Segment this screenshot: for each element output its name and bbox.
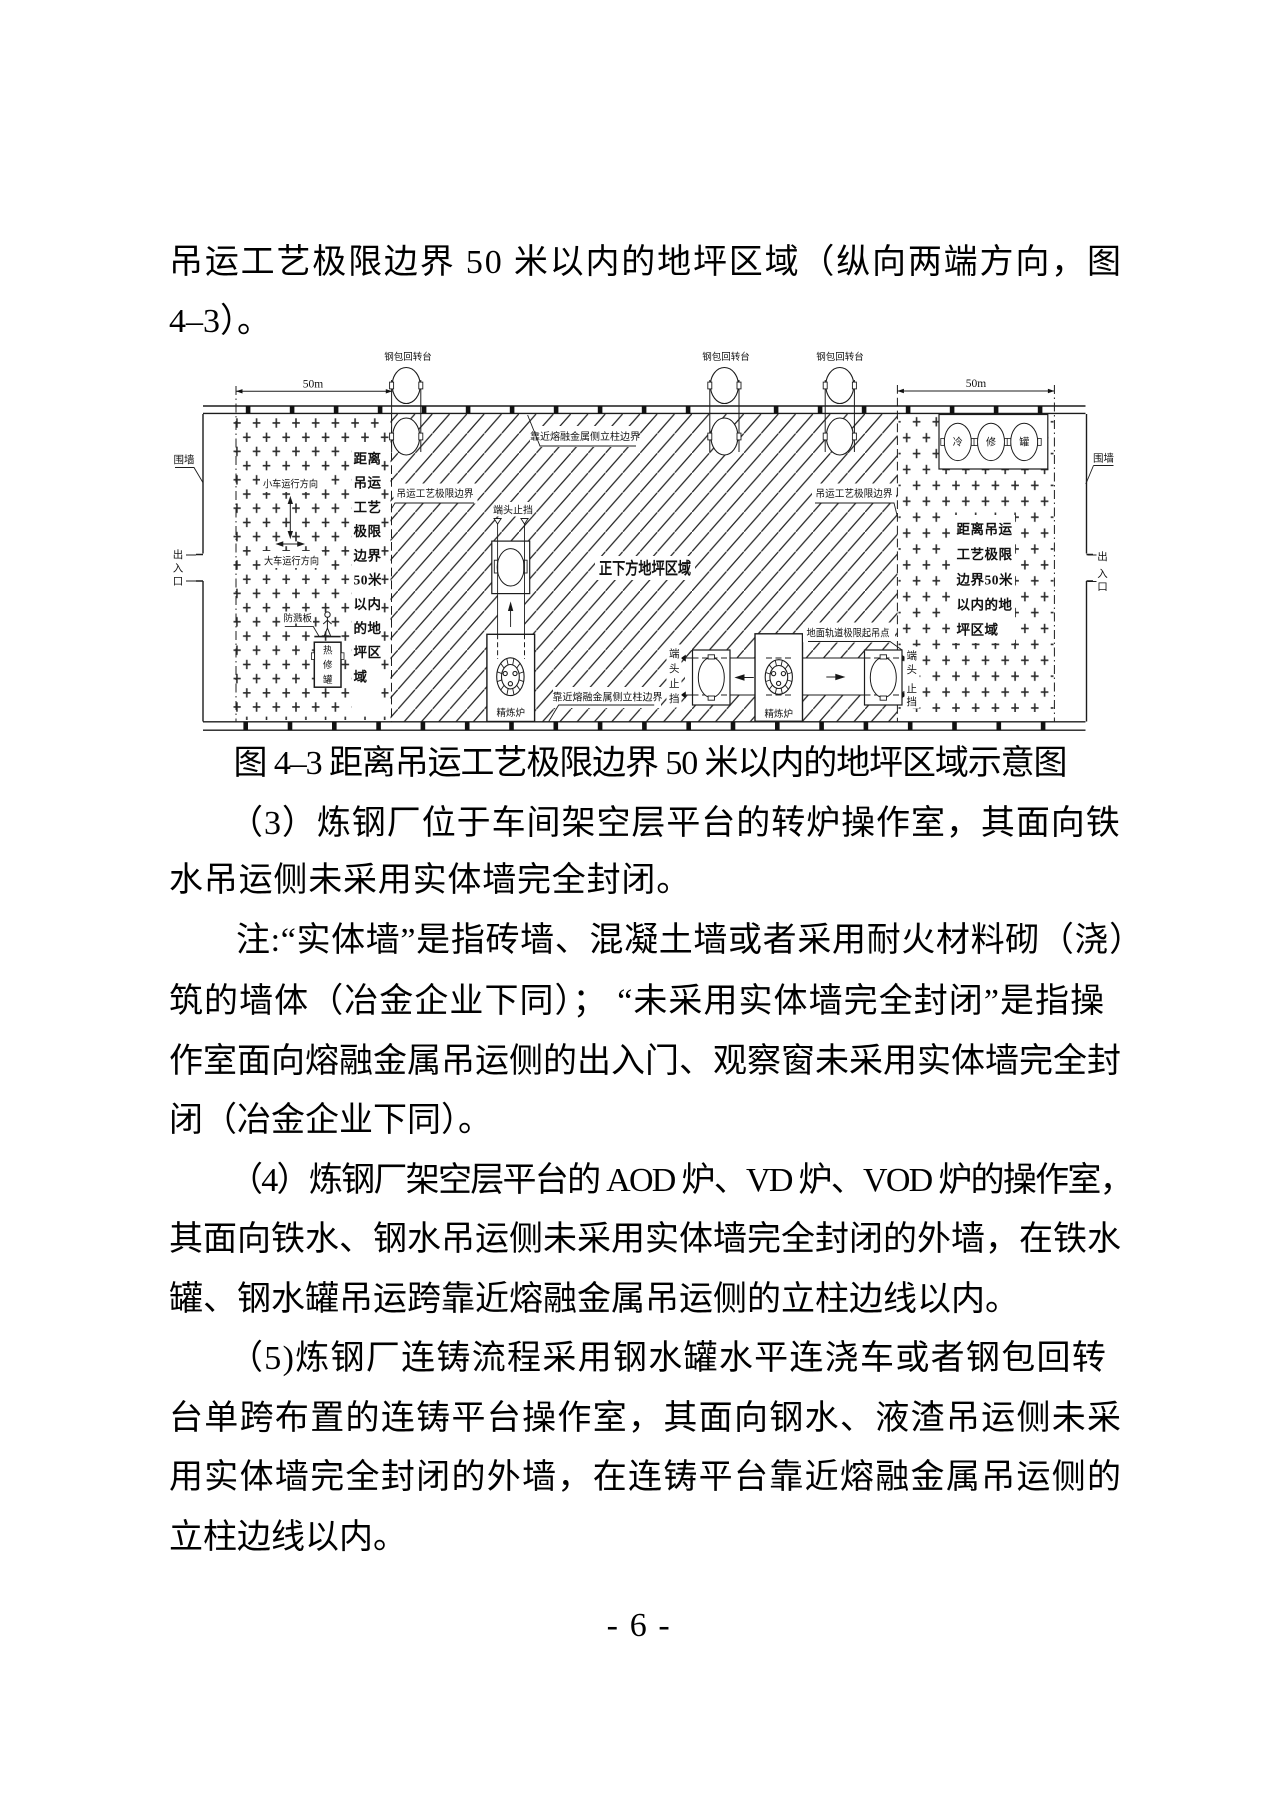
svg-text:头: 头: [669, 663, 680, 675]
svg-text:围墙: 围墙: [1093, 452, 1115, 465]
svg-text:以内: 以内: [354, 596, 382, 612]
svg-text:靠近熔融金属侧立柱边界: 靠近熔融金属侧立柱边界: [530, 430, 640, 443]
svg-text:50m: 50m: [966, 378, 987, 390]
svg-text:冷: 冷: [953, 436, 963, 449]
svg-text:端头止挡: 端头止挡: [493, 504, 533, 517]
svg-text:端: 端: [907, 649, 918, 662]
svg-text:围墙: 围墙: [174, 453, 195, 466]
svg-text:小车运行方向: 小车运行方向: [263, 478, 318, 491]
svg-text:精炼炉: 精炼炉: [765, 708, 794, 720]
svg-text:域: 域: [354, 668, 368, 684]
svg-text:防溅板: 防溅板: [284, 613, 313, 625]
svg-text:吊运工艺极限边界: 吊运工艺极限边界: [397, 487, 474, 500]
svg-text:钢包回转台: 钢包回转台: [384, 351, 432, 363]
svg-text:大车运行方向: 大车运行方向: [264, 555, 319, 568]
svg-text:口: 口: [1097, 582, 1108, 593]
svg-text:工艺: 工艺: [354, 499, 382, 515]
svg-text:出: 出: [1097, 550, 1108, 563]
svg-text:罐: 罐: [323, 674, 333, 686]
svg-text:距离: 距离: [354, 450, 382, 466]
svg-text:热: 热: [323, 644, 333, 656]
svg-text:靠近熔融金属侧立柱边界: 靠近熔融金属侧立柱边界: [553, 691, 663, 704]
svg-text:精炼炉: 精炼炉: [496, 707, 525, 719]
svg-text:极限: 极限: [354, 523, 382, 539]
svg-text:钢包回转台: 钢包回转台: [702, 351, 750, 363]
svg-text:挡: 挡: [669, 692, 680, 705]
svg-text:以内的地: 以内的地: [957, 597, 1013, 613]
svg-text:修: 修: [986, 436, 996, 449]
svg-text:的地: 的地: [354, 620, 382, 636]
svg-text:距离吊运: 距离吊运: [957, 521, 1013, 537]
svg-text:边界: 边界: [353, 548, 382, 563]
svg-text:挡: 挡: [907, 695, 918, 708]
svg-text:头: 头: [907, 664, 918, 676]
svg-text:坪区域: 坪区域: [957, 622, 999, 638]
svg-text:止: 止: [907, 683, 918, 695]
svg-text:端: 端: [669, 647, 680, 660]
svg-text:50m: 50m: [303, 378, 324, 390]
svg-text:止: 止: [669, 678, 680, 690]
svg-text:罐: 罐: [1019, 436, 1029, 449]
svg-text:口: 口: [173, 577, 184, 588]
svg-text:出: 出: [173, 548, 184, 561]
svg-text:50米: 50米: [354, 572, 383, 588]
svg-text:正下方地坪区域: 正下方地坪区域: [599, 558, 691, 578]
svg-text:地面轨道极限起吊点: 地面轨道极限起吊点: [807, 627, 890, 640]
svg-text:钢包回转台: 钢包回转台: [816, 351, 864, 363]
svg-text:工艺极限: 工艺极限: [957, 546, 1013, 562]
svg-text:坪区: 坪区: [354, 645, 382, 660]
svg-text:入: 入: [1097, 568, 1108, 580]
svg-text:边界50米: 边界50米: [956, 571, 1014, 587]
svg-text:吊运: 吊运: [354, 476, 382, 491]
svg-text:入: 入: [173, 563, 184, 575]
svg-text:修: 修: [323, 659, 333, 671]
svg-text:吊运工艺极限边界: 吊运工艺极限边界: [816, 487, 893, 500]
